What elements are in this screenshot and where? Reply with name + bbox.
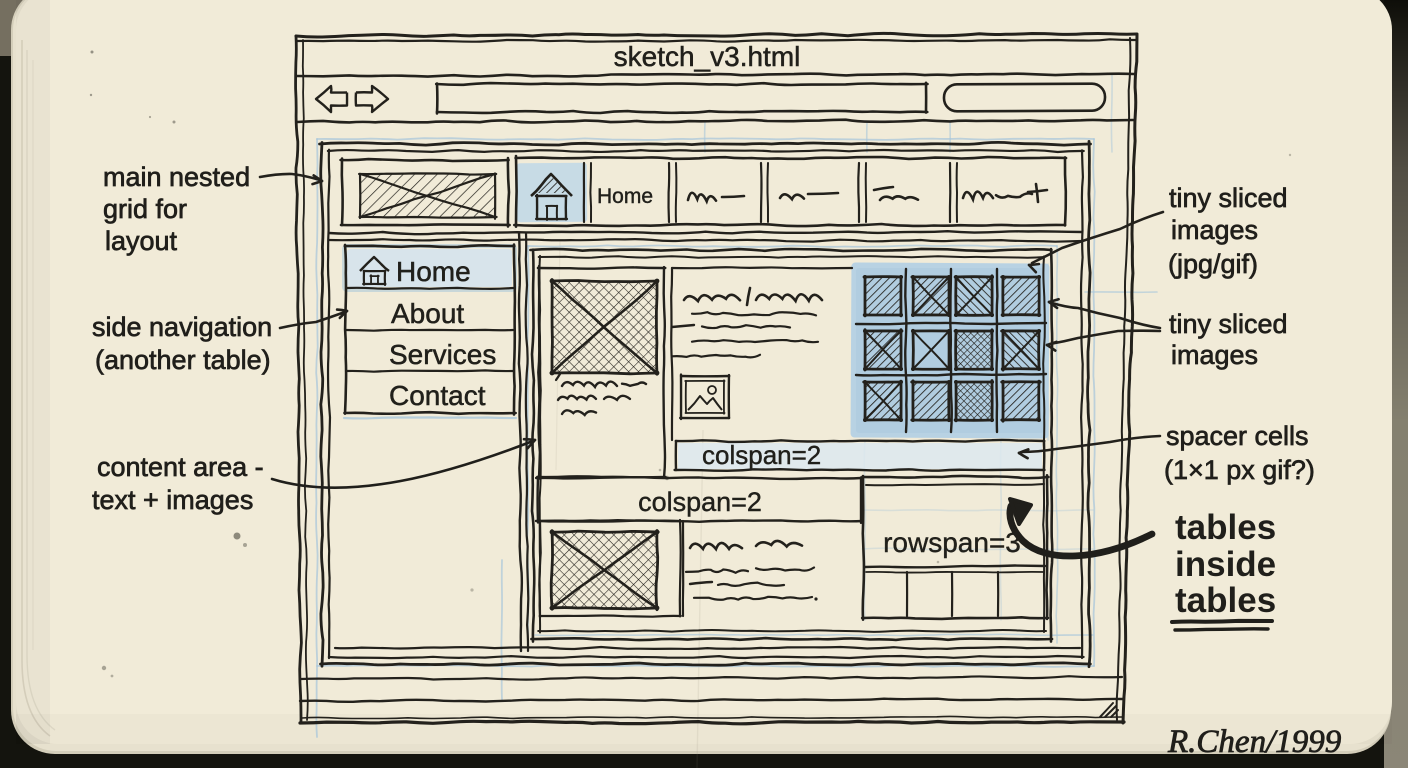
svg-text:text + images: text + images xyxy=(92,485,253,515)
svg-text:spacer cells: spacer cells xyxy=(1166,421,1309,451)
svg-text:images: images xyxy=(1171,215,1258,245)
svg-text:content area -: content area - xyxy=(97,452,264,482)
svg-text:About: About xyxy=(391,298,464,329)
svg-text:Contact: Contact xyxy=(389,380,486,411)
svg-text:(1×1 px gif?): (1×1 px gif?) xyxy=(1164,455,1315,485)
svg-text:images: images xyxy=(1171,340,1258,370)
svg-text:tables: tables xyxy=(1175,508,1276,547)
svg-text:R.Chen/1999: R.Chen/1999 xyxy=(1167,724,1341,760)
svg-text:main nested: main nested xyxy=(103,162,250,192)
svg-text:colspan=2: colspan=2 xyxy=(702,440,821,470)
svg-text:(jpg/gif): (jpg/gif) xyxy=(1168,249,1258,279)
svg-text:tiny sliced: tiny sliced xyxy=(1169,309,1288,339)
svg-text:rowspan=3: rowspan=3 xyxy=(883,527,1021,558)
svg-text:inside: inside xyxy=(1175,545,1276,584)
svg-text:layout: layout xyxy=(105,226,178,256)
svg-text:(another table): (another table) xyxy=(95,345,271,375)
svg-text:sketch_v3.html: sketch_v3.html xyxy=(614,41,801,72)
svg-text:Home: Home xyxy=(396,256,471,287)
svg-text:grid for: grid for xyxy=(103,194,187,224)
svg-text:colspan=2: colspan=2 xyxy=(638,487,762,517)
svg-text:tiny sliced: tiny sliced xyxy=(1169,183,1288,213)
svg-text:side navigation: side navigation xyxy=(92,312,272,342)
svg-text:Home: Home xyxy=(597,185,653,208)
svg-text:tables: tables xyxy=(1175,581,1276,620)
svg-text:Services: Services xyxy=(389,339,496,370)
